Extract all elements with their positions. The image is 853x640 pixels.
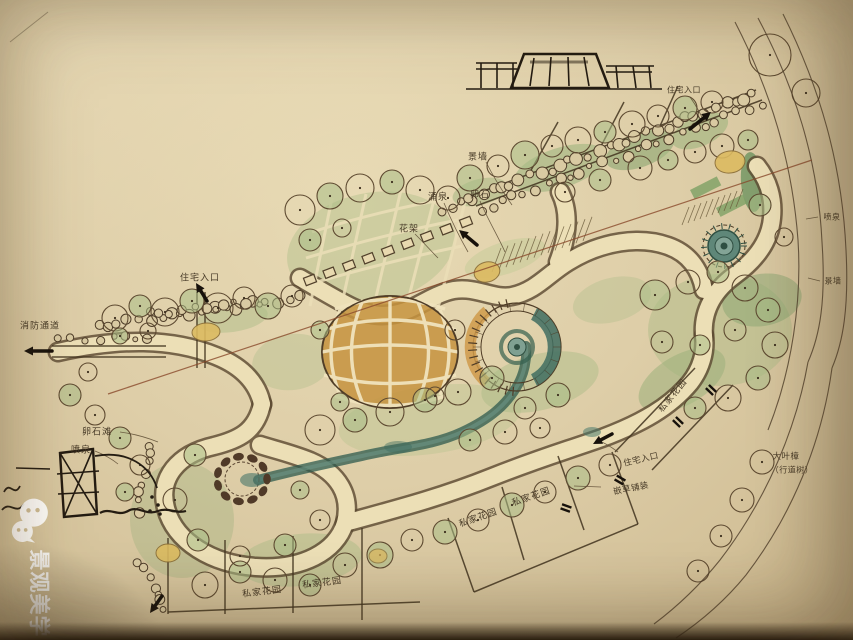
label-residence-entrance-topright: 住宅入口 bbox=[667, 85, 701, 96]
label-pebble-beach: 卵石滩 bbox=[82, 425, 112, 438]
label-camphor-tree: 大叶樟 bbox=[772, 450, 799, 462]
label-pebble: 卵石 bbox=[470, 188, 490, 201]
label-street-tree: （行道树） bbox=[771, 465, 814, 476]
label-scenic-wall-top: 景墙 bbox=[468, 150, 488, 163]
label-gushing-spring: 涌泉 bbox=[428, 190, 448, 203]
circular-fountain bbox=[701, 223, 747, 269]
site-plan-drawing bbox=[0, 0, 853, 640]
label-fountain-right: 喷泉 bbox=[824, 212, 841, 223]
pavilion-elevation-sketch bbox=[10, 12, 662, 89]
photographed-landscape-plan: 住宅入口 景墙 涌泉 卵石 花架 喷泉 景墙 住宅入口 消防通道 卵石滩 喷泉 … bbox=[0, 0, 853, 640]
label-fire-lane: 消防通道 bbox=[20, 319, 60, 332]
label-scenic-wall-right: 景墙 bbox=[825, 276, 842, 287]
dome-trellis bbox=[322, 296, 458, 408]
label-residence-entrance-left: 住宅入口 bbox=[180, 271, 220, 284]
label-fountain-left: 喷泉 bbox=[71, 443, 91, 456]
label-pergola: 花架 bbox=[399, 222, 419, 235]
